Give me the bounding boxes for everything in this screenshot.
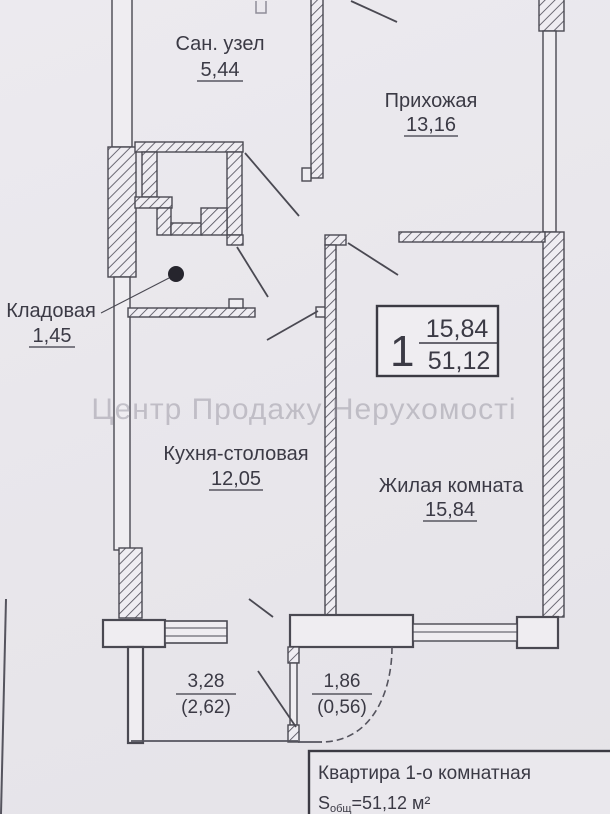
room-label-storage: Кладовая bbox=[6, 300, 96, 322]
floor-plan-svg: Центр Продажу Нерухомості Сан. узел 5,44… bbox=[0, 0, 610, 814]
door-swing-balcony-upper bbox=[249, 599, 273, 617]
wall-loggia-partition bbox=[290, 663, 297, 725]
wall-kitchen-top bbox=[128, 308, 255, 317]
door-swing-storage bbox=[237, 247, 268, 297]
balcony1-reduced-area: (2,62) bbox=[181, 697, 231, 718]
wall-bathroom-foot bbox=[302, 168, 311, 181]
wall-storage-bottom bbox=[171, 223, 202, 235]
wall-right-bottom-block bbox=[517, 617, 558, 648]
door-swing-kitchen bbox=[267, 311, 318, 340]
room-area-storage: 1,45 bbox=[33, 325, 72, 347]
footer-info: Квартира 1-о комнатная Sобщ=51,12 м² bbox=[309, 751, 610, 814]
wall-storage-right-foot bbox=[227, 235, 243, 245]
room-area-hallway: 13,16 bbox=[406, 114, 456, 136]
wall-living-left-cap bbox=[325, 235, 346, 245]
wall-bottom-mid bbox=[290, 615, 413, 647]
wall-loggia-post-bottom bbox=[288, 725, 299, 742]
window-kitchen bbox=[165, 621, 227, 643]
wall-left-lower-pier bbox=[119, 548, 142, 618]
wall-left-top bbox=[112, 0, 132, 147]
balcony1-full-area: 3,28 bbox=[188, 671, 225, 692]
balcony2-full-area: 1,86 bbox=[324, 671, 361, 692]
unit-living-area: 15,84 bbox=[426, 315, 489, 343]
unit-total-area: 51,12 bbox=[428, 347, 491, 375]
top-stub-mark bbox=[256, 1, 266, 13]
wall-bathroom-right bbox=[311, 0, 323, 178]
s-subscript: общ bbox=[330, 803, 351, 814]
wall-storage-midbar bbox=[135, 197, 172, 208]
wall-balcony-stem bbox=[128, 647, 143, 743]
wall-storage-right bbox=[227, 152, 242, 235]
room-area-living: 15,84 bbox=[425, 499, 475, 521]
wall-bottom-left-bar bbox=[103, 620, 165, 647]
wall-living-top bbox=[399, 232, 545, 242]
photo-left-edge-line bbox=[1, 599, 6, 814]
door-swing-bathroom bbox=[245, 153, 299, 216]
unit-badge: 1 15,84 51,12 bbox=[377, 306, 498, 376]
wall-left-pier bbox=[108, 147, 136, 277]
room-label-living: Жилая комната bbox=[379, 475, 524, 497]
wall-storage-bottom-right bbox=[201, 208, 227, 235]
room-area-bathroom: 5,44 bbox=[201, 59, 240, 81]
door-swing-living bbox=[348, 243, 398, 275]
wall-storage-top bbox=[135, 142, 243, 152]
wall-kitchen-top-tab bbox=[229, 299, 243, 308]
wall-right-top-pier bbox=[539, 0, 564, 31]
balcony2-reduced-area: (0,56) bbox=[317, 697, 367, 718]
room-labels: Сан. узел 5,44 Прихожая 13,16 Кладовая 1… bbox=[6, 33, 524, 521]
room-label-hallway: Прихожая bbox=[385, 90, 478, 112]
door-swing-entrance bbox=[351, 1, 397, 22]
s-label: S bbox=[318, 793, 330, 813]
apartment-type-title: Квартира 1-о комнатная bbox=[318, 763, 531, 784]
unit-number: 1 bbox=[390, 327, 414, 376]
wall-storage-step bbox=[157, 208, 171, 235]
s-value: =51,12 м² bbox=[351, 793, 430, 813]
watermark-text: Центр Продажу Нерухомості bbox=[91, 393, 516, 426]
room-area-kitchen: 12,05 bbox=[211, 468, 261, 490]
wall-storage-inner-left bbox=[142, 152, 157, 197]
floor-plan-photo: Центр Продажу Нерухомості Сан. узел 5,44… bbox=[0, 0, 610, 814]
wall-living-left bbox=[325, 245, 336, 617]
wall-right-main bbox=[543, 232, 564, 617]
riser-dot bbox=[168, 266, 184, 282]
wall-right-thin bbox=[543, 31, 556, 232]
room-label-kitchen: Кухня-столовая bbox=[163, 443, 308, 465]
wall-loggia-post-top bbox=[288, 647, 299, 663]
room-label-bathroom: Сан. узел bbox=[175, 33, 264, 55]
